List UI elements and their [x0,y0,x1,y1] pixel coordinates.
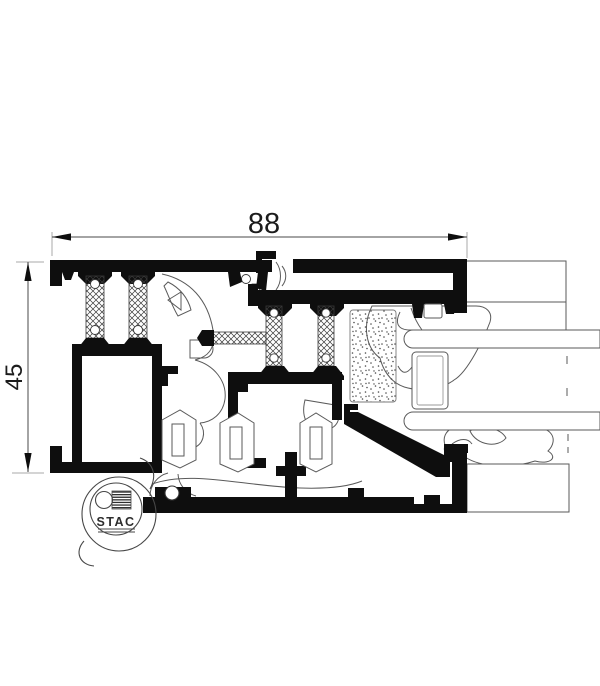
profile-cross-section-drawing: 88 45 [0,0,600,686]
logo-brand-text: STAC [96,515,135,529]
width-dimension-label: 88 [248,208,280,240]
fixed-sill-outline [467,464,569,512]
roller-wheel [165,486,179,500]
logo-circle-mark [96,492,113,509]
height-dimension-label: 45 [1,364,28,391]
technical-drawing-page: 88 45 [0,0,600,686]
foam-insulation-block [350,310,396,402]
glass-pane-outer [404,330,600,348]
thermal-break-strip-horizontal [212,332,266,344]
brush-seal-holders [162,410,332,472]
logo-striped-square [112,491,131,509]
glass-pane-inner [404,412,600,430]
